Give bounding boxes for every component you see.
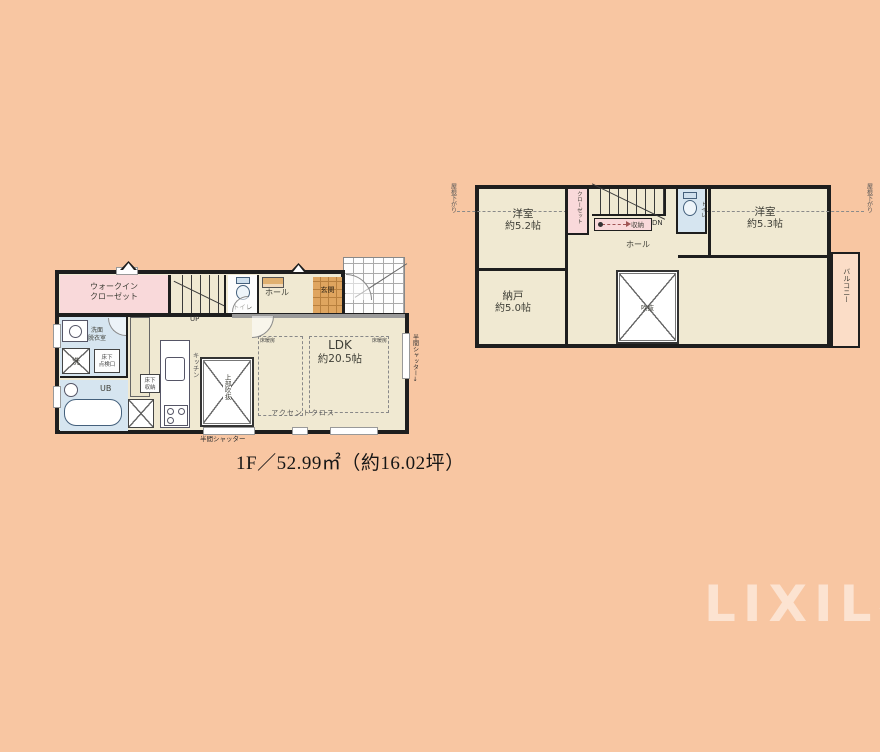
wall: [708, 189, 711, 258]
balcony-label: バルコニー: [842, 268, 851, 303]
storage-arrow: [602, 224, 626, 225]
accent-cloth-1f-label: アクセントクロス: [248, 409, 358, 418]
underfloor-inspection-label: 床下点検口: [95, 355, 119, 369]
entrance-genkan: 玄関: [313, 277, 342, 313]
void-above-square: 上部吹抜: [200, 357, 254, 427]
closet-2f-top-label: クローゼット: [575, 191, 582, 224]
washroom-label: 洗面脱衣室: [88, 327, 106, 342]
toilet-room-2f-label: トイレ: [699, 201, 706, 218]
sink-basin-icon: [69, 325, 82, 338]
stairs-down-label: DN: [652, 219, 663, 228]
stairs-down: [592, 189, 666, 216]
bath-sink-icon: [64, 383, 78, 397]
storage-2f-label: 収納: [631, 221, 644, 229]
toilet-bowl-icon: [683, 200, 697, 216]
stove-icon: [164, 405, 188, 426]
walk-in-closet-1f: ウォークインクローゼット: [60, 275, 171, 313]
half-shutter-right-label: 半間シャッター↓: [411, 334, 419, 383]
laundry-space: 洗: [62, 348, 90, 374]
void-square-2f: 吹抜 クローゼット ウォークインクローゼット 洋室 約7.8帖 アクセントクロス…: [616, 270, 679, 344]
roof-vent-inner: [293, 265, 304, 272]
toilet-tank-icon: [236, 277, 250, 284]
kitchen-counter: [160, 340, 190, 428]
roof-slope-right-label: 屋根下がり: [865, 183, 873, 213]
shoe-cabinet: [262, 277, 284, 288]
window: [53, 324, 61, 348]
floor1-area-label: 1F／52.99㎡（約16.02坪）: [236, 448, 465, 475]
wall: [678, 255, 829, 258]
vanity-sink-icon: [62, 320, 88, 342]
refrigerator-space: [128, 399, 154, 428]
walk-in-closet-1f-label: ウォークインクローゼット: [60, 282, 168, 302]
underfloor-storage: 床下収納: [140, 374, 160, 393]
entrance-door-arc: [346, 274, 372, 300]
bedroom-53-label: 洋室 約5.3帖: [722, 206, 808, 232]
unit-bath: UB: [60, 380, 128, 431]
roof-vent-icon: [290, 263, 307, 272]
entry-porch-tiles: [343, 257, 405, 314]
kitchen-sink-icon: [165, 357, 185, 381]
floor-heating-zone-a: 床暖房: [258, 336, 303, 416]
window: [292, 427, 308, 435]
burner-icon: [178, 408, 185, 415]
underfloor-storage-label: 床下収納: [141, 378, 159, 392]
burner-icon: [167, 417, 174, 424]
watermark: LIXIL不動産ショップ: [704, 564, 880, 636]
unit-bath-label: UB: [100, 384, 111, 394]
roof-slope-left-label: 屋根下がり: [449, 183, 457, 213]
roof-vent-icon: [120, 261, 137, 270]
wall: [479, 268, 567, 271]
closet-2f-top: クローゼット: [568, 189, 589, 235]
window: [203, 427, 255, 435]
balcony: バルコニー: [831, 252, 860, 348]
window: [402, 333, 410, 379]
kitchen-label: キッチン: [191, 352, 199, 378]
toilet-tank-icon: [683, 192, 697, 199]
stairs-up: [174, 275, 226, 313]
entrance-genkan-label: 玄関: [313, 286, 342, 295]
hall-2f-label: ホール: [626, 240, 650, 250]
stairs-up-label: UP: [190, 315, 199, 324]
storeroom-label: 納戸 約5.0帖: [470, 290, 556, 316]
burner-icon: [167, 408, 174, 415]
floor-heating-zone-b: 床暖房: [309, 336, 389, 413]
floor-heating-label: 床暖房: [260, 338, 275, 344]
window: [330, 427, 378, 435]
void-above-label: 上部吹抜: [223, 373, 231, 401]
half-shutter-bottom-label: 半間シャッター: [200, 435, 246, 443]
floorplan-flyer: { "colors": { "background": "#f8c6a2", "…: [0, 0, 880, 660]
bathtub-icon: [64, 399, 122, 426]
bedroom-52-label: 洋室 約5.2帖: [480, 208, 566, 234]
hall-1f-label: ホール: [265, 288, 289, 298]
laundry-label: 洗: [63, 357, 89, 367]
underfloor-inspection-hatch: 床下点検口: [94, 349, 120, 373]
window: [53, 386, 61, 408]
toilet-room-2f: トイレ: [676, 189, 707, 234]
floor-heating-label: 床暖房: [372, 338, 387, 344]
void-2f-label: 吹抜: [618, 304, 677, 312]
roof-vent-inner: [123, 263, 134, 270]
storage-2f: 収納: [594, 218, 652, 231]
